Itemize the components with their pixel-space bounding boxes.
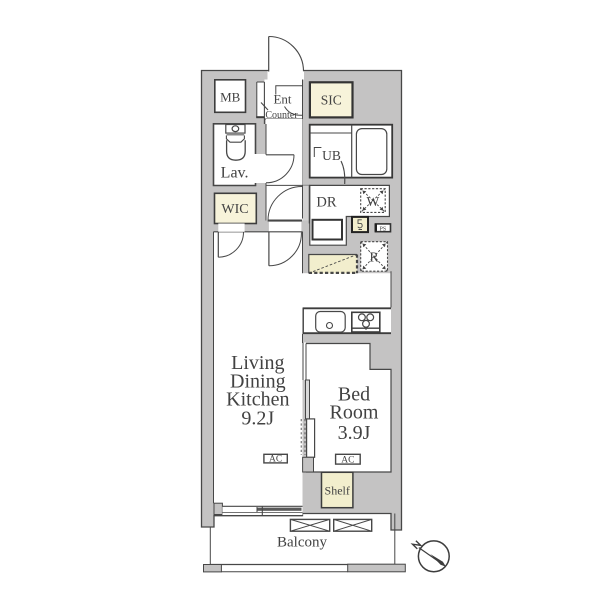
svg-text:3.9J: 3.9J — [338, 422, 371, 444]
svg-text:PS: PS — [380, 227, 387, 233]
svg-text:Room: Room — [330, 402, 379, 424]
svg-text:9.2J: 9.2J — [241, 408, 274, 430]
svg-text:AC: AC — [269, 455, 282, 465]
svg-text:W: W — [367, 194, 380, 209]
svg-text:DR: DR — [316, 195, 336, 211]
svg-text:Shelf: Shelf — [325, 484, 350, 498]
svg-text:R: R — [369, 249, 378, 264]
svg-text:AC: AC — [341, 455, 354, 465]
svg-text:UB: UB — [322, 148, 341, 163]
svg-text:MB: MB — [220, 90, 241, 105]
svg-text:SIC: SIC — [321, 92, 342, 107]
svg-text:Balcony: Balcony — [277, 535, 327, 551]
svg-text:WIC: WIC — [221, 202, 248, 217]
svg-text:Lav.: Lav. — [221, 165, 249, 182]
